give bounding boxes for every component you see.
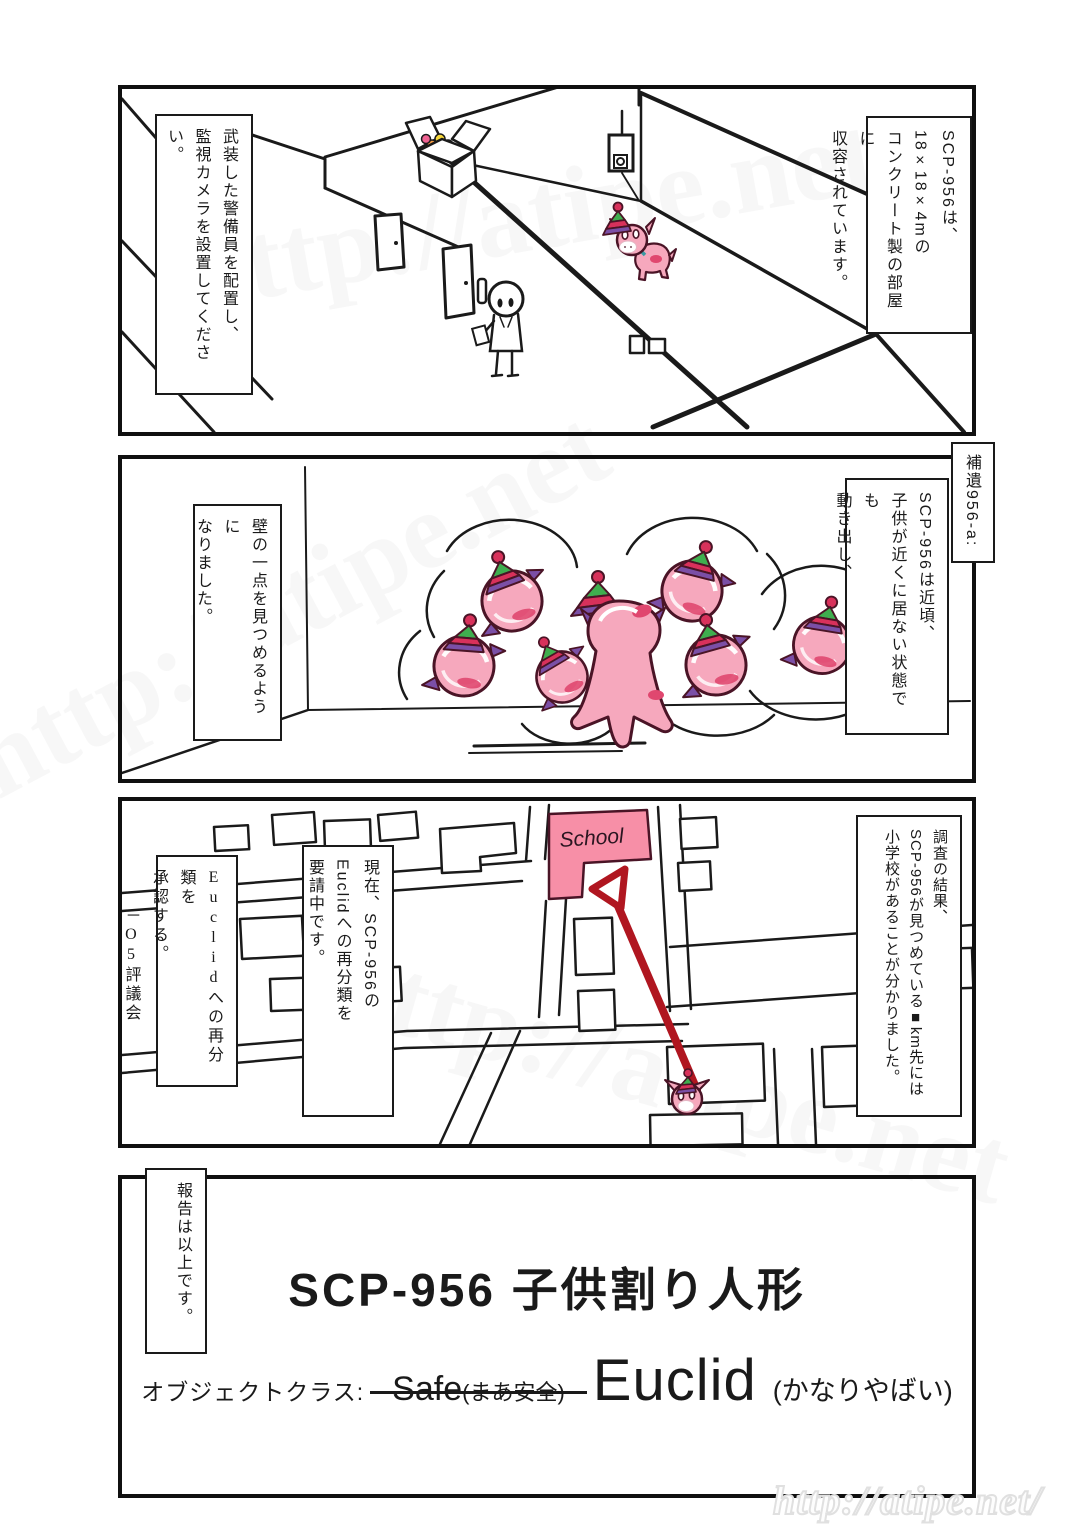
object-class-row: オブジェクトクラス: Safe(まあ安全) Euclid (かなりやばい)	[122, 1347, 972, 1414]
object-class-label: オブジェクトクラス:	[141, 1373, 364, 1407]
caption-containment: SCP-956は、 18×18×4mの コンクリート製の部屋に 収容されています…	[866, 116, 972, 334]
panel-3-map: School	[118, 797, 976, 1148]
caption-reclass-request: 現在、SCP-956の Euclidへの再分類を 要請中です。	[302, 845, 394, 1117]
caption-security: 武装した警備員を配置し、 監視カメラを設置してください。	[155, 114, 253, 395]
new-class-note: (かなりやばい)	[773, 1369, 953, 1408]
door-open	[443, 245, 474, 318]
caption-investigation: 調査の結果、 SCP-956が見つめている■km先には 小学校があることが分かり…	[856, 815, 962, 1117]
caption-staring: 壁の一点を見つめるように なりました。	[193, 504, 282, 741]
wall-bracket	[630, 336, 644, 353]
map-illustration: School	[122, 801, 972, 1144]
old-class-strikethrough: Safe(まあ安全)	[386, 1370, 571, 1409]
standing-pinata	[571, 571, 672, 747]
caption-movement: SCP-956は近頃、 子供が近くに居ない状態でも 動き出し、	[845, 478, 949, 735]
red-arrow	[592, 869, 697, 1090]
caption-o5-approval: Euclidへの再分類を 承認する。 －O5評議会	[156, 855, 238, 1087]
door-frame	[478, 279, 486, 303]
caption-report-end: 報告は以上です。	[145, 1168, 207, 1354]
site-watermark: http://atipe.net/	[773, 1477, 1042, 1524]
spinning-pinata	[462, 541, 557, 640]
scp-title: SCP-956 子供割り人形	[122, 1254, 972, 1320]
addendum-label: 補遺956-a:	[951, 442, 995, 563]
wall-bracket	[649, 339, 665, 353]
door	[375, 214, 404, 270]
comic-page: { "page": { "watermark_url": "http://ati…	[0, 0, 1091, 1531]
party-hat-icon	[603, 203, 631, 236]
panel-4-title: SCP-956 子供割り人形 オブジェクトクラス: Safe(まあ安全) Euc…	[118, 1175, 976, 1498]
spinning-pinata	[670, 607, 759, 701]
security-camera-icon	[609, 111, 638, 199]
school-label: School	[559, 824, 626, 852]
new-class: Euclid	[593, 1347, 757, 1414]
